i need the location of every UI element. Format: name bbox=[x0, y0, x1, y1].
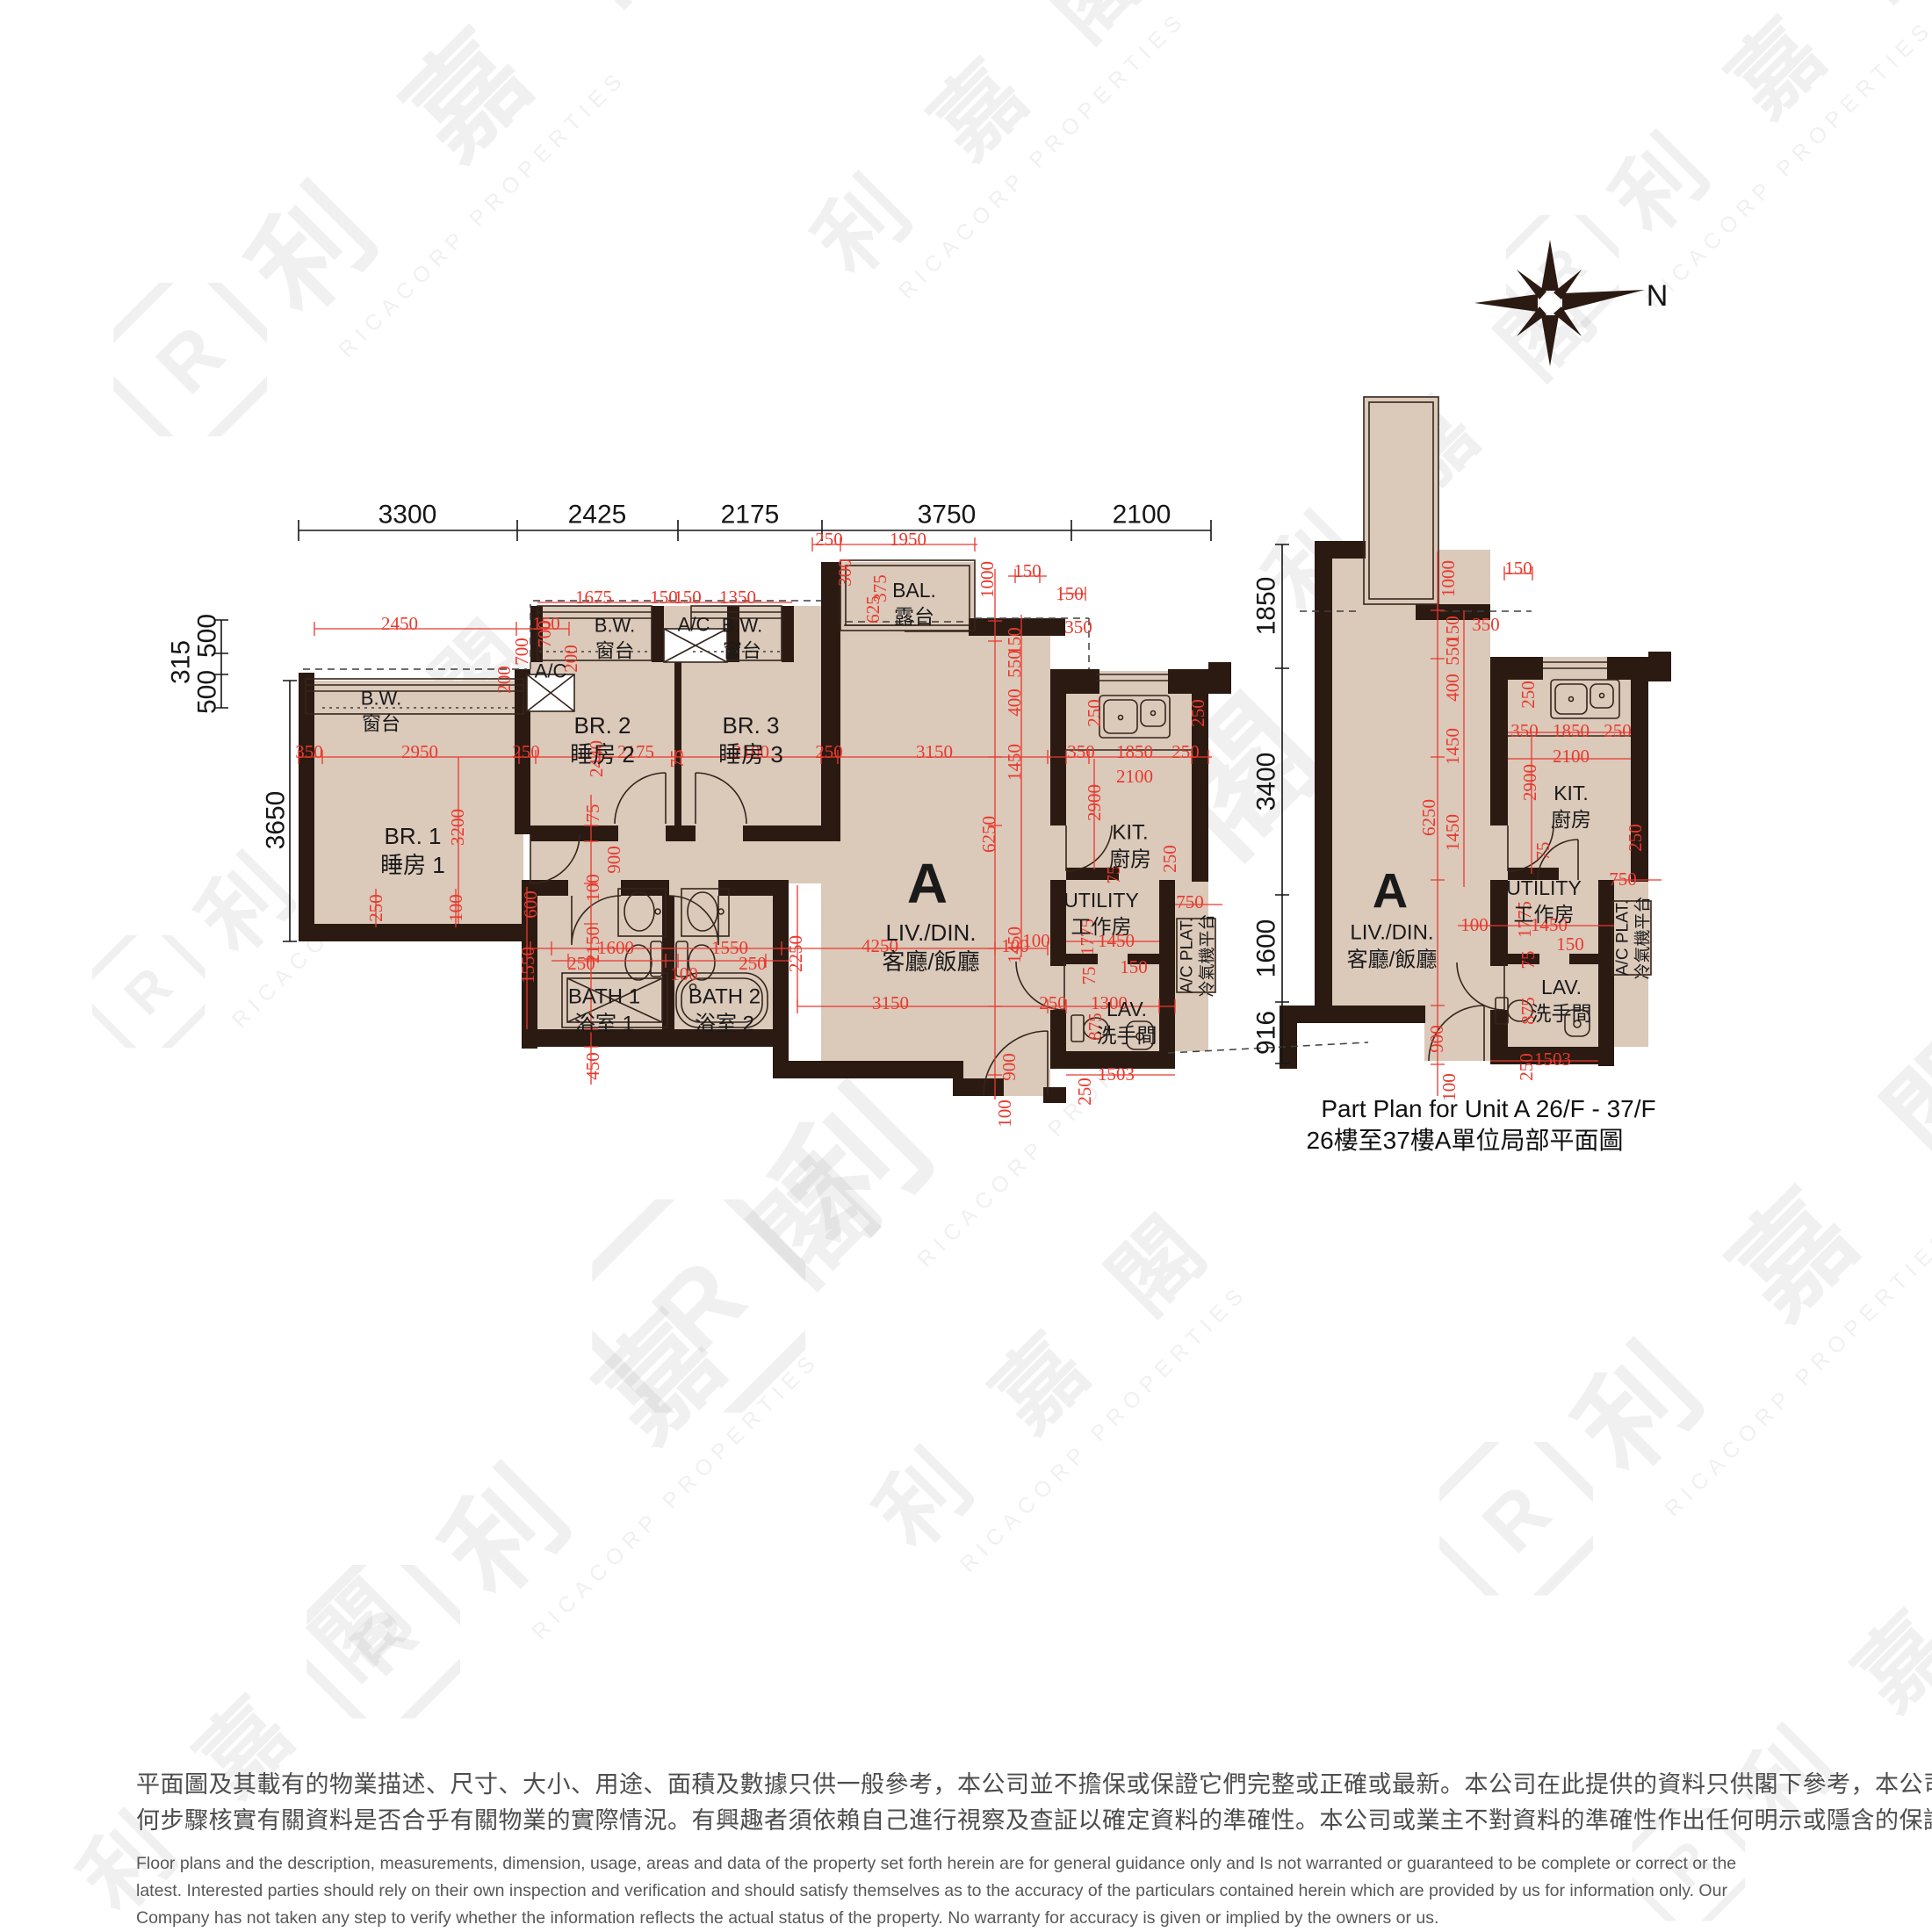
dimension-label: 900 bbox=[998, 1053, 1020, 1081]
room-label: LIV./DIN. bbox=[1350, 921, 1433, 945]
room-label: 廚房 bbox=[1551, 808, 1591, 831]
room-label: 睡房 3 bbox=[718, 741, 783, 768]
room-label: BATH 2 bbox=[688, 985, 761, 1009]
dimension-label: 100 bbox=[582, 874, 603, 902]
dimension-label: 1503 bbox=[1534, 1049, 1571, 1070]
dimension-label: 500 bbox=[193, 614, 222, 658]
room-label: 窗台 bbox=[595, 640, 634, 662]
dimension-label: 900 bbox=[1426, 1025, 1447, 1053]
dimension-label: 150 bbox=[674, 587, 702, 608]
dimension-label: 6250 bbox=[1418, 799, 1439, 836]
dimension-label: 550 bbox=[1442, 638, 1463, 666]
dimension-label: 400 bbox=[1004, 688, 1025, 717]
room-label: LAV. bbox=[1107, 998, 1147, 1020]
disclaimer-zh-line: 平面圖及其載有的物業描述、尺寸、大小、用途、面積及數據只供一般參考，本公司並不擔… bbox=[136, 1767, 1822, 1803]
room-label: A bbox=[907, 852, 948, 915]
dimension-label: 450 bbox=[582, 1052, 603, 1080]
dimension-label: 250 bbox=[512, 741, 540, 762]
room-label: A bbox=[1373, 863, 1408, 919]
dimension-label: 250 bbox=[1517, 681, 1539, 709]
disclaimer-block: 平面圖及其載有的物業描述、尺寸、大小、用途、面積及數據只供一般參考，本公司並不擔… bbox=[136, 1767, 1822, 1931]
room-label: A/C bbox=[678, 614, 710, 636]
dimension-label: 250 bbox=[1159, 845, 1180, 873]
room-label: BATH 1 bbox=[568, 985, 640, 1009]
room-label: 廚房 bbox=[1109, 848, 1151, 872]
dimension-label: 1450 bbox=[1442, 728, 1463, 765]
dimension-label: 1850 bbox=[1116, 741, 1153, 762]
room-label: 睡房 2 bbox=[570, 741, 635, 768]
dimension-label: 300 bbox=[834, 559, 855, 587]
dimension-label: 100 bbox=[1022, 930, 1050, 951]
dimension-label: 3400 bbox=[1252, 753, 1281, 811]
dimension-label: 1450 bbox=[1004, 744, 1025, 781]
dimension-label: 350 bbox=[1067, 741, 1095, 762]
room-label: 客廳/飯廳 bbox=[882, 948, 979, 975]
dimension-label: 200 bbox=[494, 666, 515, 694]
dimension-label: 600 bbox=[520, 890, 541, 919]
dimension-label: 150 bbox=[1120, 956, 1148, 977]
room-label: 露台 bbox=[894, 605, 934, 628]
dimension-label: 350 bbox=[1510, 720, 1539, 741]
room-label: BAL. bbox=[892, 579, 936, 602]
dimension-label: 400 bbox=[1442, 674, 1463, 702]
room-label: 工作房 bbox=[1514, 903, 1575, 926]
dimension-label: 250 bbox=[1604, 720, 1632, 741]
dimension-label: 250 bbox=[365, 894, 386, 922]
dimension-label: 2100 bbox=[1553, 746, 1590, 767]
dimension-label: 916 bbox=[1252, 1011, 1281, 1055]
disclaimer-en-line: Company has not taken any step to verify… bbox=[136, 1906, 1822, 1931]
dimension-label: 3750 bbox=[918, 501, 977, 530]
dimension-label: 2450 bbox=[381, 613, 418, 634]
room-label: 客廳/飯廳 bbox=[1347, 948, 1438, 972]
dimension-label: 1000 bbox=[977, 561, 998, 598]
dimension-label: 1503 bbox=[1098, 1063, 1135, 1085]
dimension-label: 315 bbox=[167, 640, 196, 684]
room-label: 洗手間 bbox=[1097, 1024, 1157, 1047]
room-label: B.W. bbox=[361, 688, 401, 710]
room-label: A/C PLAT. bbox=[1179, 918, 1197, 993]
room-label: A/C bbox=[535, 660, 567, 682]
dimension-label: 350 bbox=[1064, 616, 1092, 638]
dimension-label: 750 bbox=[1176, 891, 1204, 912]
dimension-label: 100 bbox=[670, 963, 698, 984]
room-label: B.W. bbox=[722, 615, 762, 637]
room-label: 浴室 2 bbox=[695, 1013, 754, 1036]
dimension-label: 250 bbox=[1625, 824, 1646, 852]
dimension-label: 625 bbox=[862, 595, 883, 624]
dimension-label: 3300 bbox=[378, 501, 437, 530]
dimension-label: 750 bbox=[1609, 869, 1637, 890]
dimension-label: 150 bbox=[1556, 934, 1584, 955]
dimension-label: 1850 bbox=[1252, 577, 1281, 636]
dimension-label: 700 bbox=[511, 638, 532, 666]
room-label: BR. 2 bbox=[573, 712, 631, 739]
dimension-label: 1675 bbox=[575, 587, 612, 608]
part-plan-caption-en: Part Plan for Unit A 26/F - 37/F bbox=[1321, 1095, 1655, 1122]
dimension-label: 250 bbox=[1171, 741, 1200, 762]
dimension-label: 150 bbox=[1056, 583, 1084, 604]
room-label: B.W. bbox=[595, 615, 635, 637]
dimension-label: 2900 bbox=[1084, 784, 1105, 821]
dimension-label: 250 bbox=[815, 741, 843, 762]
dimension-label: 6250 bbox=[978, 816, 999, 853]
room-label: UTILITY bbox=[1506, 876, 1582, 899]
dimension-label: 2250 bbox=[785, 935, 806, 972]
room-label: 睡房 1 bbox=[380, 852, 445, 878]
room-label: BR. 3 bbox=[722, 712, 779, 739]
dimension-label: 250 bbox=[1039, 992, 1067, 1013]
dimension-label: 3150 bbox=[916, 741, 953, 762]
dimension-label: 100 bbox=[445, 894, 466, 922]
room-label: 洗手間 bbox=[1532, 1002, 1592, 1025]
compass: N bbox=[1474, 240, 1668, 366]
room-label: KIT. bbox=[1554, 782, 1589, 804]
dimension-label: 150 bbox=[1504, 558, 1532, 579]
dimension-label: 75 bbox=[1078, 967, 1099, 985]
dimension-label: 1000 bbox=[1438, 560, 1459, 597]
dimension-label: 250 bbox=[815, 529, 843, 550]
dimension-label: 75 bbox=[1517, 951, 1539, 970]
room-label: A/C PLAT. bbox=[1614, 900, 1633, 976]
disclaimer-en-line: Floor plans and the description, measure… bbox=[136, 1851, 1822, 1877]
room-label: KIT. bbox=[1112, 821, 1148, 845]
dimension-label: 1450 bbox=[1442, 814, 1463, 851]
dimension-label: 2425 bbox=[568, 501, 627, 530]
dimension-label: 350 bbox=[295, 741, 323, 762]
room-label: UTILITY bbox=[1063, 889, 1139, 912]
dimension-label: 250 bbox=[739, 953, 767, 974]
dimension-label: 250 bbox=[1516, 1053, 1537, 1081]
compass-north-label: N bbox=[1647, 279, 1669, 313]
dimension-label: 250 bbox=[1187, 699, 1208, 727]
dimension-label: 2950 bbox=[401, 741, 438, 762]
dimension-label: 1850 bbox=[1553, 720, 1590, 741]
dimension-label: 350 bbox=[1472, 614, 1500, 635]
dimension-label: 100 bbox=[1460, 914, 1489, 935]
dimension-label: 1950 bbox=[890, 529, 926, 550]
dimension-label: 75 bbox=[667, 750, 688, 768]
dimension-label: 2900 bbox=[1519, 764, 1540, 801]
dimension-label: 3200 bbox=[447, 809, 468, 846]
dimension-label: 1350 bbox=[719, 587, 756, 608]
dimension-label: 250 bbox=[1074, 1078, 1095, 1106]
dimension-label: 1550 bbox=[517, 947, 538, 984]
dimension-label: 900 bbox=[603, 846, 624, 874]
dimension-label: 3150 bbox=[872, 992, 909, 1013]
dimension-label: 550 bbox=[1004, 650, 1025, 678]
room-label: 冷氣機平台 bbox=[1633, 896, 1653, 979]
disclaimer-zh-line: 何步驟核實有關資料是否合乎有關物業的實際情況。有興趣者須依賴自己進行視察及查証以… bbox=[136, 1803, 1822, 1839]
dimension-label: 75 bbox=[582, 804, 603, 823]
room-label: LIV./DIN. bbox=[885, 919, 976, 946]
dimension-label: 2100 bbox=[1113, 501, 1171, 530]
room-label: 工作房 bbox=[1071, 915, 1132, 938]
room-label: 冷氣機平台 bbox=[1198, 913, 1217, 997]
part-plan-caption-zh: 26樓至37樓A單位局部平面圖 bbox=[1307, 1127, 1624, 1154]
room-label: BR. 1 bbox=[384, 823, 441, 849]
floor-plan-page: R利 嘉 閣 RICACORP PROPERTIES 利 嘉 閣 RICACOR… bbox=[0, 0, 1932, 1932]
dimension-label: 2100 bbox=[1116, 766, 1153, 787]
room-label: 窗台 bbox=[723, 640, 761, 662]
floor-plan-svg: 3300242521753750210050031550036501850340… bbox=[0, 0, 1932, 1932]
dimension-label: 150 bbox=[1013, 560, 1042, 581]
dimension-label: 1600 bbox=[597, 937, 634, 958]
dimension-label: 250 bbox=[1084, 699, 1105, 727]
room-label: 浴室 1 bbox=[574, 1013, 634, 1036]
dimension-label: 250 bbox=[567, 953, 595, 974]
dimension-label: 100 bbox=[994, 1099, 1015, 1128]
dimension-label: 1600 bbox=[1252, 919, 1281, 978]
dimension-label: 75 bbox=[1532, 842, 1554, 861]
room-label: 窗台 bbox=[362, 713, 400, 735]
dimension-label: 3650 bbox=[262, 791, 291, 850]
dimension-label: 700 bbox=[534, 620, 555, 648]
dimension-label: 500 bbox=[193, 670, 222, 714]
disclaimer-en-line: latest. Interested parties should rely o… bbox=[136, 1878, 1822, 1904]
dimension-label: 2175 bbox=[721, 501, 780, 530]
room-label: LAV. bbox=[1541, 976, 1582, 998]
